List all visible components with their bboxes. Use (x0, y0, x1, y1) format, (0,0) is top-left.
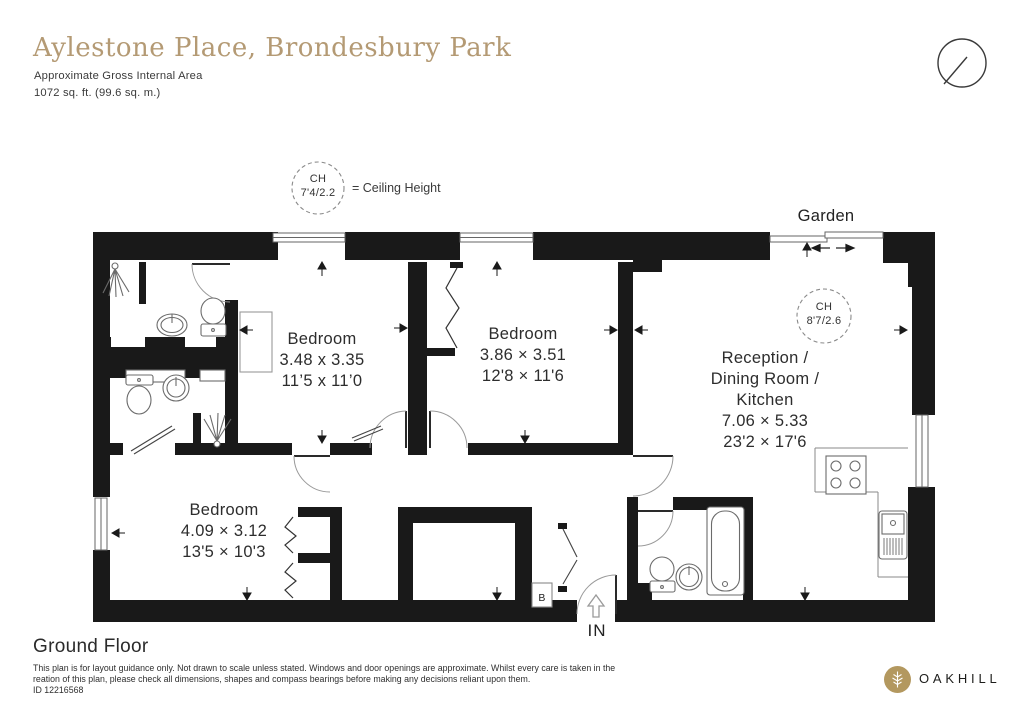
window-icon (460, 233, 533, 242)
hob-icon (826, 456, 866, 494)
window-icon (95, 498, 107, 550)
area-label: Approximate Gross Internal Area (34, 70, 203, 82)
wardrobe (240, 312, 272, 372)
disclaimer-line-1: This plan is for layout guidance only. N… (33, 663, 615, 674)
garden-label: Garden (798, 206, 855, 227)
reception-ch-value: 8'7/2.6 (807, 315, 842, 328)
disclaimer-line-2: reation of this plan, please check all d… (33, 674, 530, 685)
reception-ch-abbr: CH (816, 301, 833, 314)
kitchen-sink-icon (879, 511, 907, 559)
window-icon (273, 233, 345, 242)
toilet-icon (650, 557, 675, 592)
floorplan-page: { "header": { "title": "Aylestone Place,… (0, 0, 1025, 720)
bathtub-icon (707, 507, 744, 595)
boiler-label: B (538, 588, 545, 609)
area-value: 1072 sq. ft. (99.6 sq. m.) (34, 87, 160, 99)
floor-label: Ground Floor (33, 636, 149, 658)
sink-icon (157, 314, 187, 336)
legend-ch-abbr: CH (310, 173, 327, 186)
brand-name: OAKHILL (919, 671, 1001, 686)
entrance-arrow-icon (588, 595, 604, 617)
toilet-icon (126, 375, 153, 414)
page-title: Aylestone Place, Brondesbury Park (33, 33, 511, 63)
exterior-walls (93, 232, 935, 622)
legend-ch-meaning: = Ceiling Height (352, 181, 441, 195)
window-icon (916, 415, 928, 487)
sliding-door-icon (770, 232, 883, 242)
oakhill-logo-icon (883, 665, 912, 694)
entrance-label: IN (588, 620, 607, 641)
sink-icon (676, 564, 702, 590)
compass-icon (934, 35, 992, 93)
sliding-arrow-icon (812, 245, 854, 252)
legend-ch-value: 7'4/2.2 (301, 187, 336, 200)
sink-icon (163, 375, 189, 401)
plan-id: ID 12216568 (33, 685, 83, 696)
toilet-icon (201, 298, 226, 336)
